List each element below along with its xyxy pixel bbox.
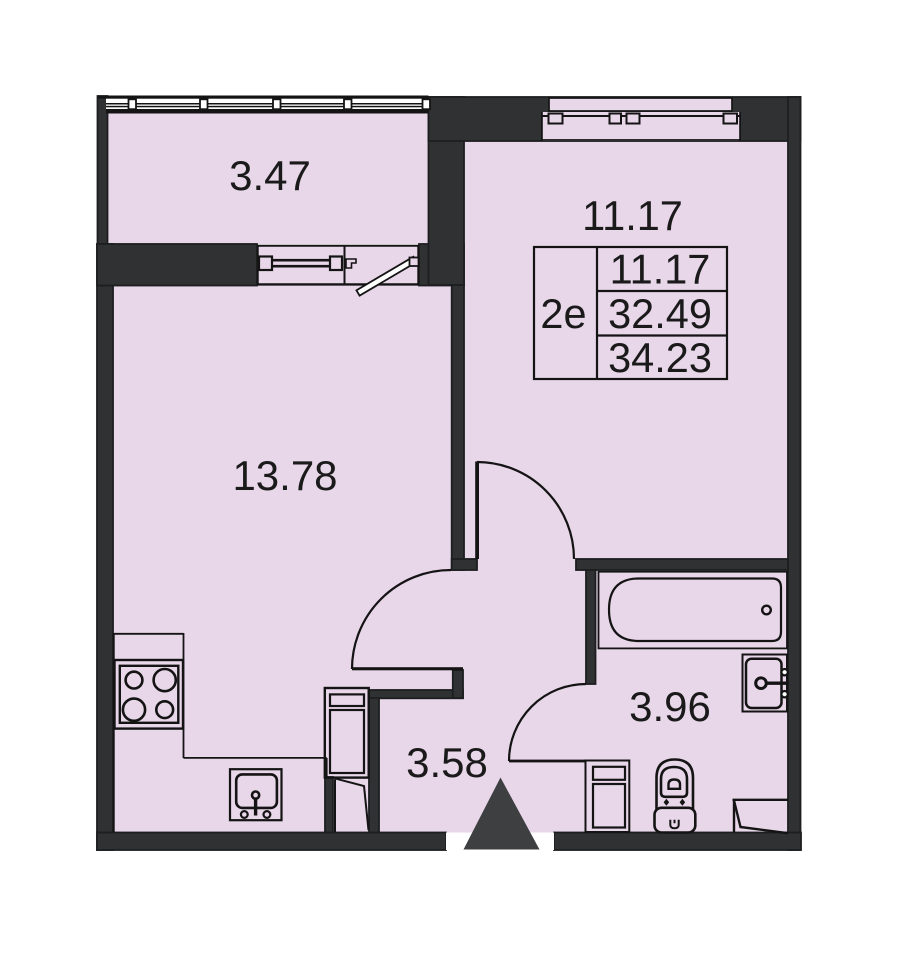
svg-text:11.17: 11.17: [582, 192, 683, 239]
svg-text:3.58: 3.58: [406, 739, 488, 786]
svg-text:11.17: 11.17: [610, 246, 711, 293]
svg-text:3.96: 3.96: [629, 683, 711, 730]
svg-text:13.78: 13.78: [232, 452, 337, 499]
svg-text:2e: 2e: [540, 290, 586, 337]
svg-text:32.49: 32.49: [608, 290, 712, 337]
svg-text:3.47: 3.47: [229, 152, 311, 199]
svg-text:34.23: 34.23: [608, 334, 712, 381]
